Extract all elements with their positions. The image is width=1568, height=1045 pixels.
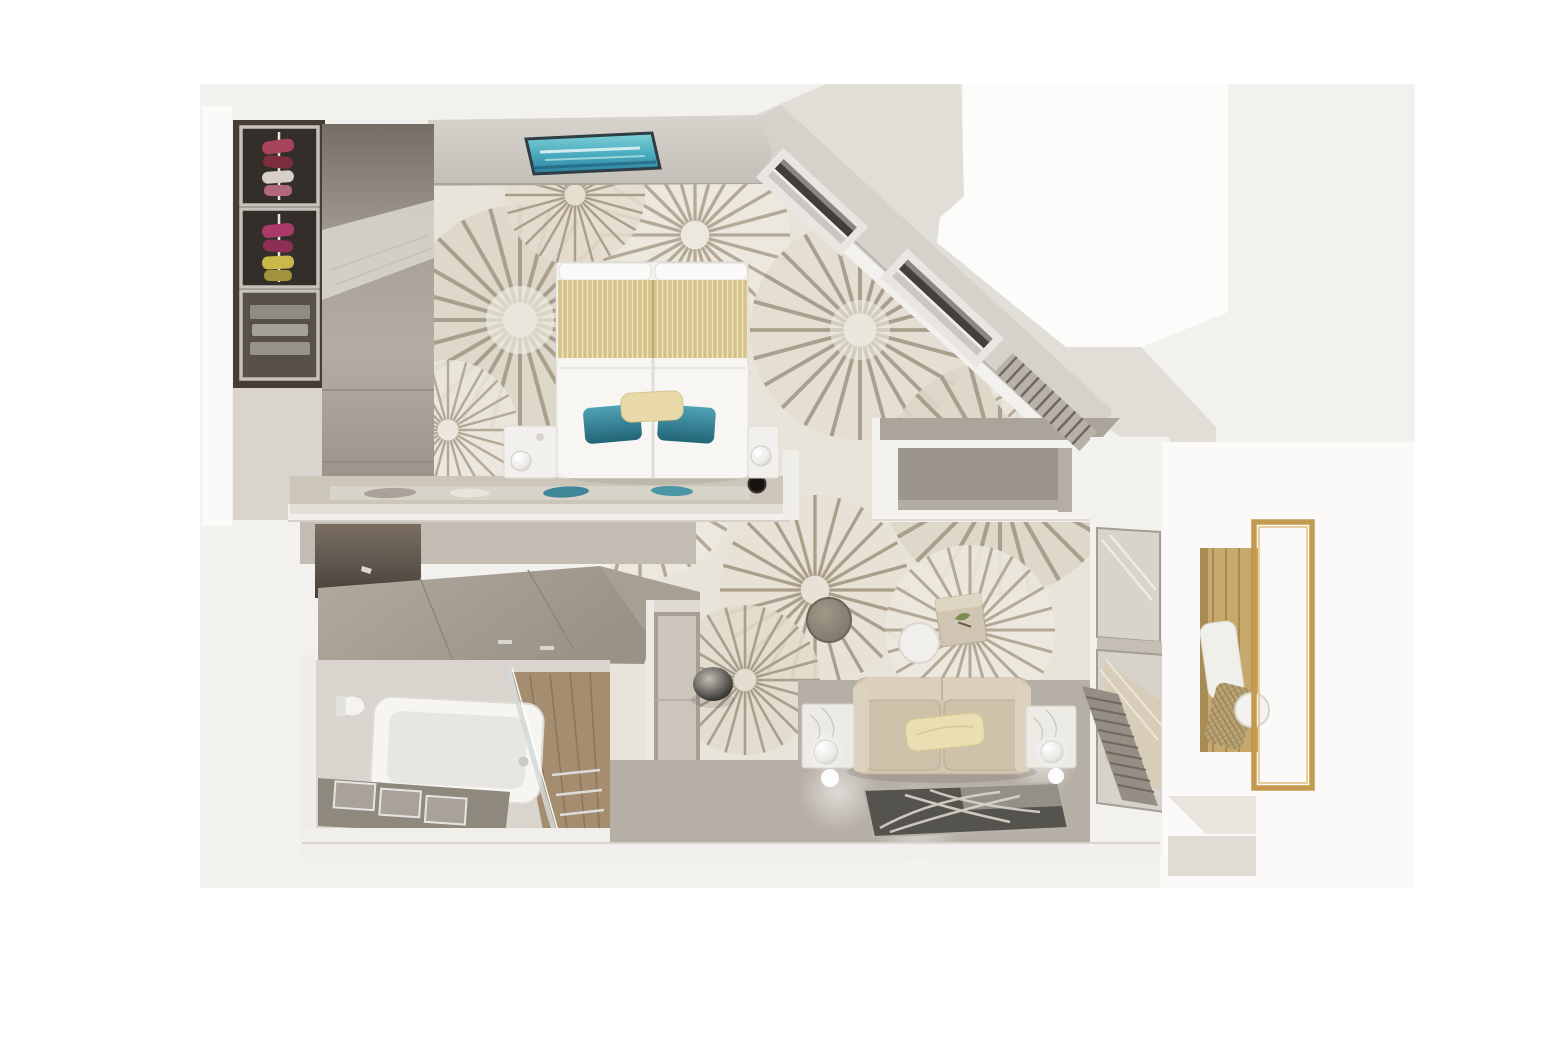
bottom-wall [302, 843, 1160, 859]
wardrobe-door-panel [322, 124, 434, 506]
headboard-cushion-right [655, 263, 747, 280]
skylight-art-panel [526, 133, 660, 174]
sofa [847, 678, 1037, 783]
bathroom-left-wall [300, 655, 316, 847]
bathroom [300, 655, 612, 856]
white-round-table [899, 623, 939, 663]
feather-area-rug [864, 783, 1068, 837]
cube-accent-table [935, 593, 987, 647]
gray-pouf [693, 667, 733, 701]
right-nightstand [748, 426, 779, 478]
left-nightstand [504, 426, 557, 478]
glass-sphere-lamp [814, 740, 838, 764]
dark-round-table [807, 598, 851, 642]
cabinet-top-face [654, 600, 700, 614]
glass-sphere-lamp [1041, 741, 1063, 763]
headboard-cushion-left [559, 263, 651, 280]
sphere-lamp [511, 451, 531, 471]
left-outer-wall [202, 106, 232, 526]
glass-sphere-lamp [821, 769, 839, 787]
double-bed [553, 262, 753, 485]
cream-pillow [620, 390, 683, 422]
exterior-step-2 [1168, 836, 1256, 876]
sphere-lamp [751, 446, 771, 466]
glass-sphere-lamp [1048, 768, 1064, 784]
sofa-arm-left [853, 684, 869, 772]
floor-plan-render [0, 0, 1568, 1045]
floor-plan-canvas [0, 0, 1568, 1045]
ledge-end-panel [783, 450, 799, 520]
